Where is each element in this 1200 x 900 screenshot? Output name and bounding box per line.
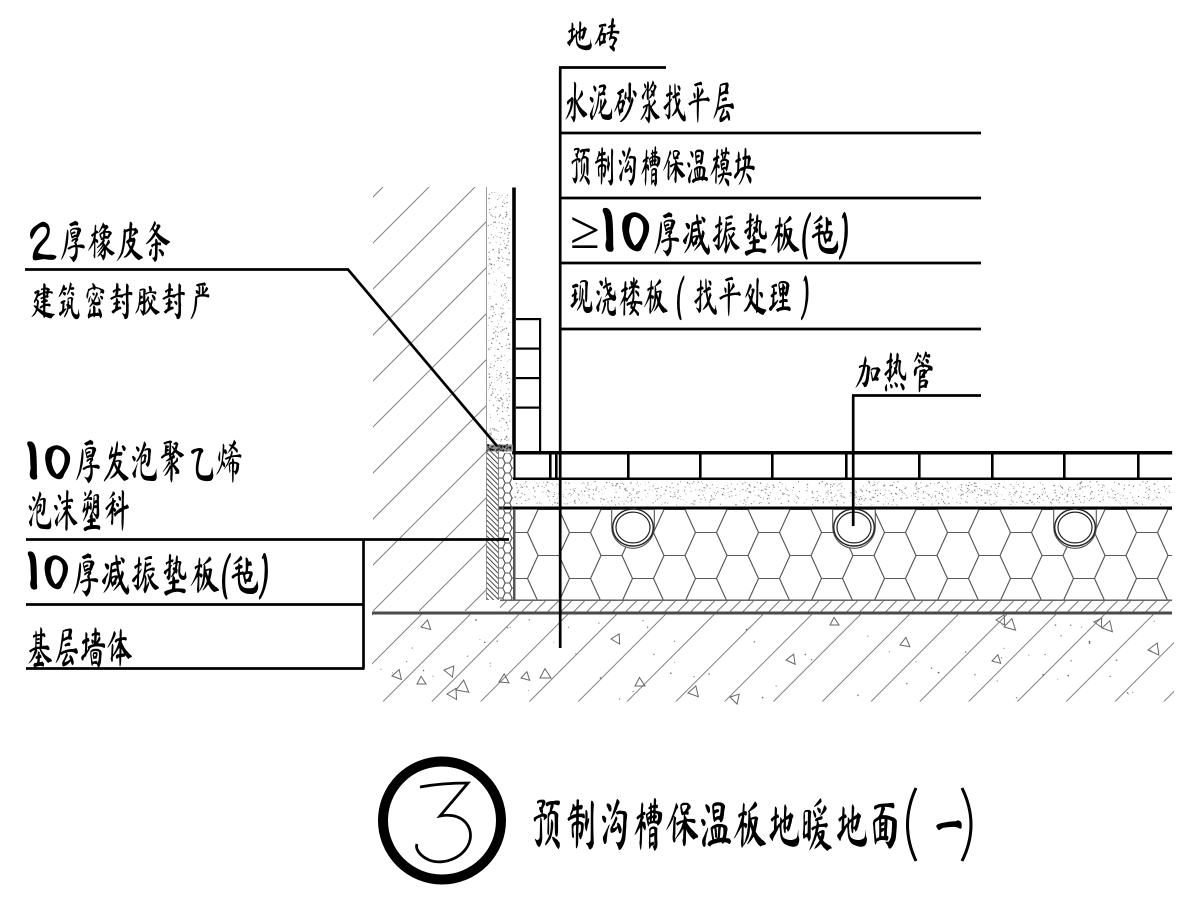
svg-text:一: 一	[934, 796, 964, 852]
svg-text:预制沟槽保温板地暖地面: 预制沟槽保温板地暖地面	[530, 794, 902, 852]
svg-text:水泥砂浆找平层: 水泥砂浆找平层	[564, 79, 736, 125]
svg-text:10: 10	[21, 421, 72, 494]
svg-text:预制沟槽保温模块: 预制沟槽保温模块	[569, 144, 756, 188]
svg-text:10: 10	[596, 185, 651, 269]
svg-text:现浇楼板（找平处理）: 现浇楼板（找平处理）	[569, 274, 817, 321]
svg-text:建筑密封胶封严: 建筑密封胶封严	[30, 280, 213, 320]
svg-text:10: 10	[22, 531, 69, 604]
svg-text:厚减振垫板(毡): 厚减振垫板(毡)	[71, 551, 270, 600]
svg-text:地砖: 地砖	[565, 14, 621, 54]
svg-text:基层墙体: 基层墙体	[27, 625, 133, 669]
svg-text:厚减振垫板(毡): 厚减振垫板(毡)	[652, 210, 850, 260]
svg-text:加热管: 加热管	[854, 350, 937, 394]
svg-text:厚发泡聚乙烯: 厚发泡聚乙烯	[74, 438, 243, 484]
svg-text:厚橡皮条: 厚橡皮条	[59, 219, 172, 263]
svg-text:2: 2	[27, 197, 57, 277]
svg-text:泡沫塑料: 泡沫塑料	[27, 488, 130, 532]
